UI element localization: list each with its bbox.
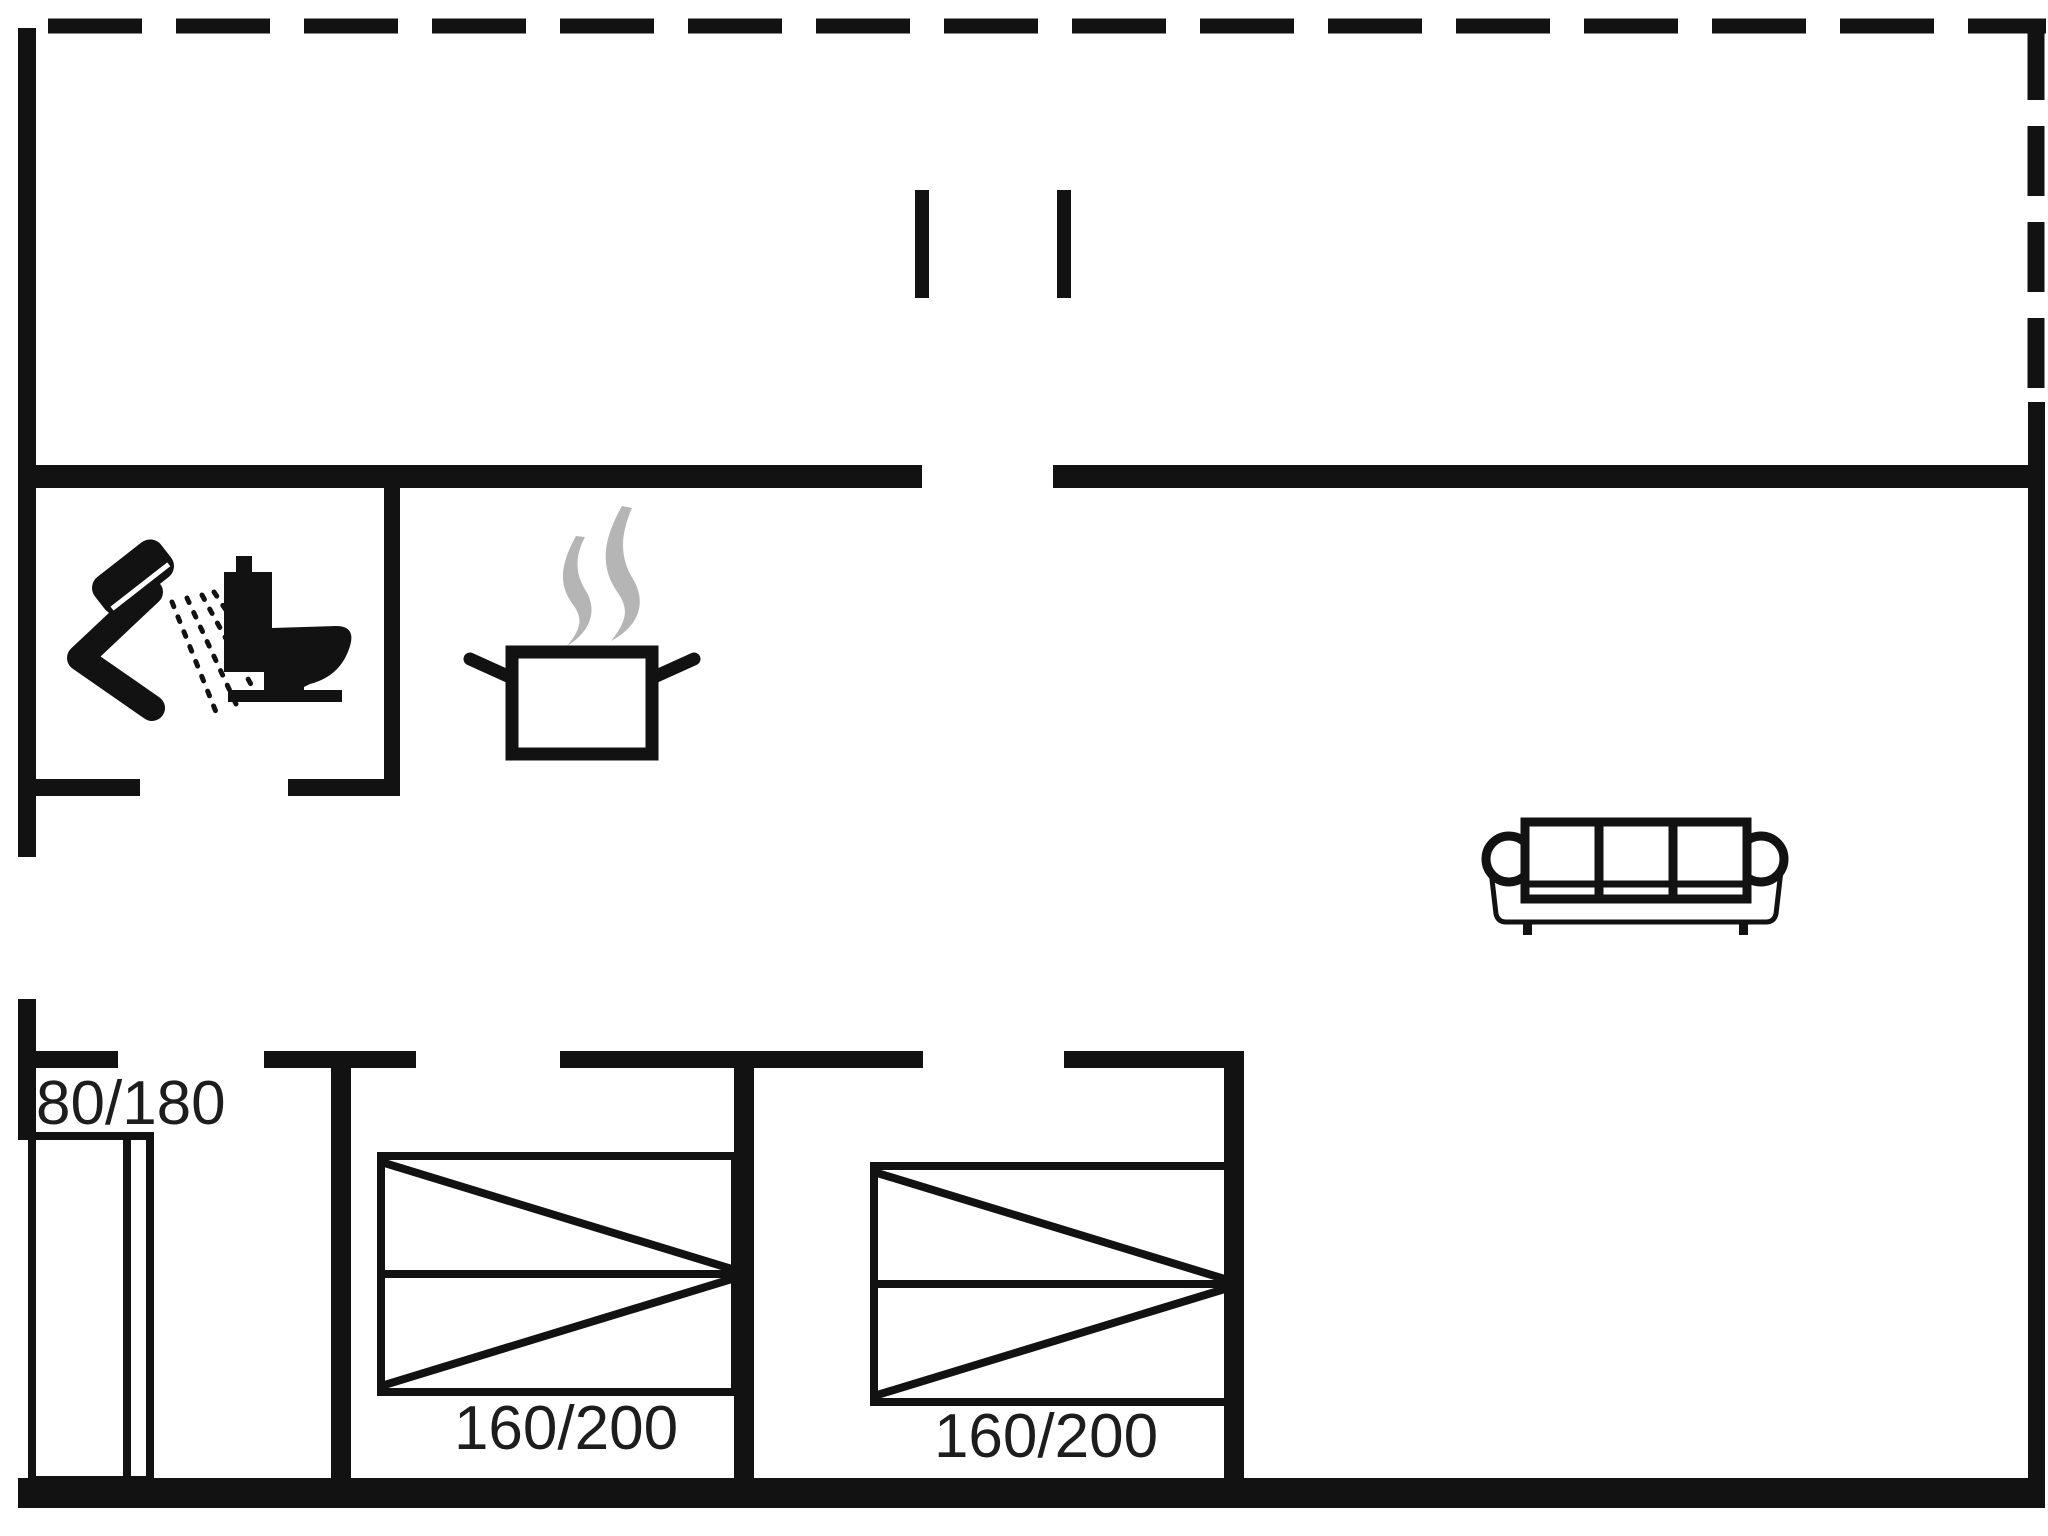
double-bed-symbol-1	[381, 1156, 735, 1392]
bedroom2-wall-top-segment	[1064, 1051, 1243, 1068]
bed2-size-label: 160/200	[934, 1402, 1158, 1471]
wall-terrace-front-left-segment	[18, 465, 922, 488]
steam-icon	[563, 506, 640, 646]
wall-terrace-front-right-segment	[1053, 465, 2044, 488]
single-bed-outline	[32, 1136, 150, 1480]
bathroom	[80, 534, 351, 712]
terrace-boundary	[48, 26, 2046, 402]
bathroom-wall-bottom-left-segment	[36, 779, 140, 796]
sofa-leg-right	[1739, 922, 1748, 935]
bathroom-wall-bottom-right-segment	[288, 779, 400, 796]
bedroom-1: 160/200	[381, 1156, 735, 1463]
floorplan-svg: 80/180 160/200 160/200	[0, 0, 2048, 1536]
pot-body	[512, 652, 652, 754]
exterior-wall-left-lower	[18, 999, 36, 1140]
kitchen	[470, 506, 694, 754]
toilet-base	[228, 690, 342, 702]
steam-wisp-right	[606, 506, 640, 641]
exterior-wall-bottom	[18, 1478, 2045, 1508]
sofa-leg-left	[1523, 922, 1532, 935]
toilet-tank	[224, 572, 272, 672]
bed1-size-label: 160/200	[454, 1394, 678, 1463]
terrace-door-mark-left	[915, 190, 929, 298]
toilet-icon	[224, 556, 351, 702]
toilet-pedestal	[264, 660, 304, 692]
divider-hall-bedroom1	[331, 1051, 351, 1480]
sofa-icon	[1486, 822, 1784, 935]
exterior-wall-right	[2028, 402, 2045, 1506]
bathroom-wall-right	[384, 465, 400, 795]
living-room	[1486, 822, 1784, 935]
exterior-wall-left-upper	[18, 28, 36, 857]
bedroom-2: 160/200	[874, 1166, 1228, 1471]
hall-bed-size-label: 80/180	[36, 1069, 226, 1138]
cooking-pot-icon	[470, 652, 694, 754]
double-bed-symbol-2	[874, 1166, 1228, 1402]
hallway: 80/180	[32, 1069, 226, 1480]
steam-wisp-left	[563, 536, 592, 646]
hallway-wall-top-segment	[32, 1051, 118, 1068]
floorplan-canvas: 80/180 160/200 160/200	[0, 0, 2048, 1536]
single-bed-symbol	[32, 1136, 150, 1480]
terrace-door-mark-right	[1057, 190, 1071, 298]
